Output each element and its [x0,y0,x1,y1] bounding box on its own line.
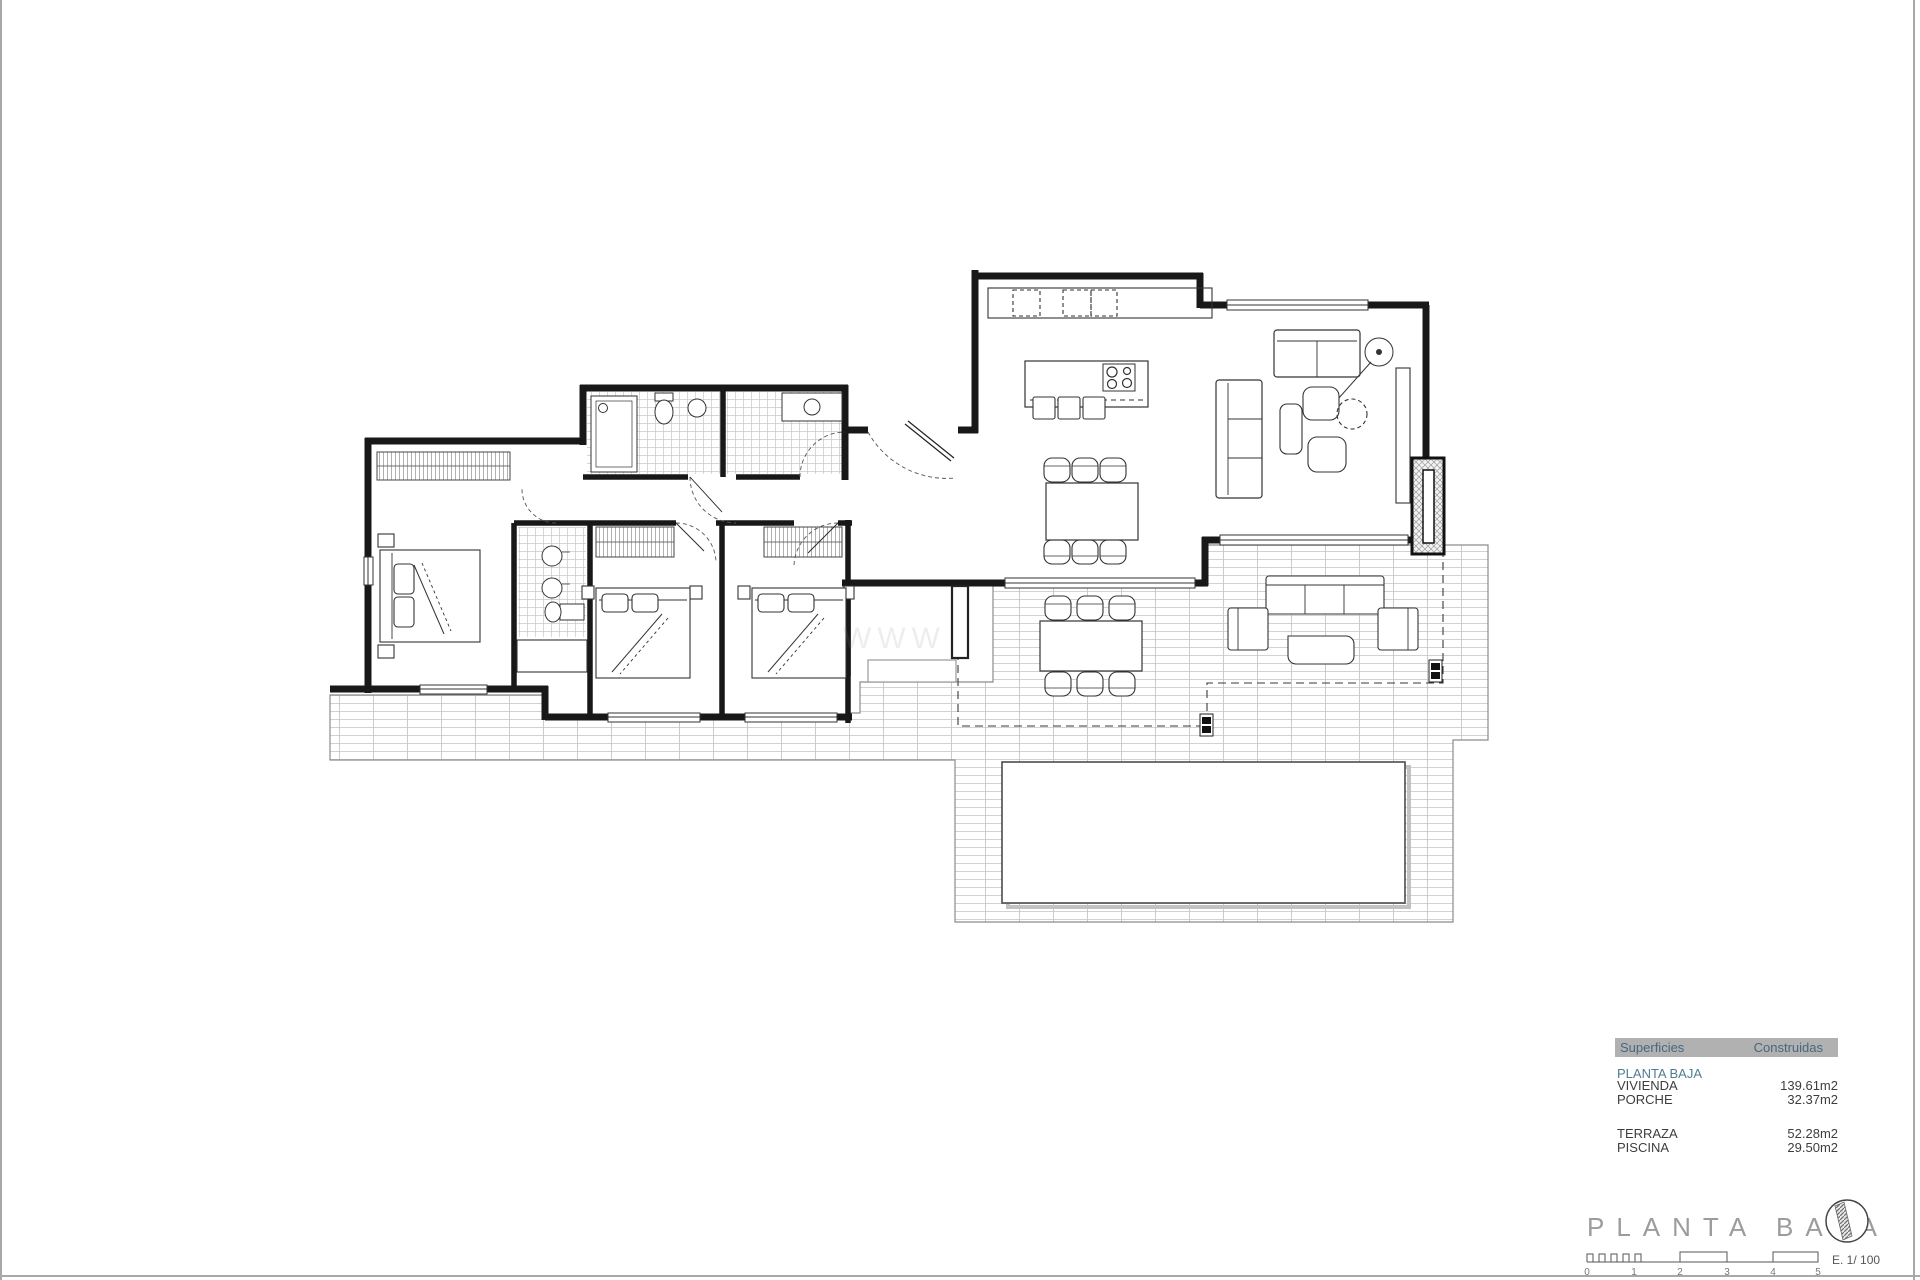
sink-icon [542,578,562,598]
window [1005,578,1195,588]
row-label: PORCHE [1617,1092,1673,1107]
sideboard [1396,368,1410,503]
side-table [1280,404,1302,454]
shower-drain-icon [599,404,608,413]
armchair [1303,387,1339,420]
row-label: TERRAZA [1617,1126,1678,1141]
toilet-icon [655,400,673,424]
entry-step [868,660,956,682]
row-value: 29.50m2 [1787,1141,1838,1155]
bedroom2-bed [582,586,702,678]
row-label: PISCINA [1617,1140,1669,1155]
wardrobe [596,527,674,557]
surfaces-table-header: Superficies Construidas [1615,1038,1838,1057]
window [364,557,373,585]
wardrobe [377,452,510,480]
row-label: VIVIENDA [1617,1078,1678,1093]
pergola-post-icon [1429,660,1442,682]
nightstand [378,534,394,547]
window [1227,300,1368,310]
watermark-text: WWW [843,622,946,655]
outdoor-dining-set [1040,596,1142,696]
loveseat-sofa [1274,330,1360,377]
dining-set [1044,458,1138,564]
sink-icon [804,399,820,415]
nightstand [378,645,394,658]
fireplace-pillar [1412,458,1444,554]
toilet-icon [545,602,561,622]
toilet-tank [560,604,584,620]
floor-plan-sheet: { "sheet": { "bg": "#ffffff", "border_co… [0,0,1920,1280]
living-sofa [1216,380,1262,498]
table-row: PORCHE 32.37m2 [1617,1093,1838,1107]
window [745,713,837,722]
sheet-border-bottom [0,1275,1920,1277]
row-value: 139.61m2 [1780,1079,1838,1093]
table-row: TERRAZA 52.28m2 [1617,1127,1838,1141]
armchair [1308,437,1346,472]
scale-bar [1587,1252,1818,1262]
row-value: 52.28m2 [1787,1127,1838,1141]
nightstand [582,586,594,599]
sink-icon [542,546,562,566]
scale-ratio-label: E. 1/ 100 [1832,1253,1880,1267]
dining-table [1046,483,1138,540]
sink-icon [688,399,706,417]
window [1220,535,1408,545]
col-superficies: Superficies [1620,1038,1684,1057]
sheet-border-left [0,0,2,1280]
wardrobe [764,527,842,557]
linen-closet [517,640,587,672]
row-value: 32.37m2 [1787,1093,1838,1107]
nightstand [738,586,750,599]
table-row: PISCINA 29.50m2 [1617,1141,1838,1155]
nightstand [690,586,702,599]
north-compass-icon [1826,1200,1868,1242]
sheet-border-right [1913,0,1915,1280]
coffee-table [1288,636,1354,664]
table-row: VIVIENDA 139.61m2 [1617,1079,1838,1093]
swimming-pool [1002,762,1409,907]
master-bedroom-bed [378,534,480,658]
bedroom3-bed [738,586,854,678]
window [420,685,487,694]
pergola-post-icon [1200,714,1213,736]
porch-column [952,586,968,658]
window [608,713,700,722]
col-construidas: Construidas [1754,1038,1823,1057]
bathroom-2 [782,393,842,421]
